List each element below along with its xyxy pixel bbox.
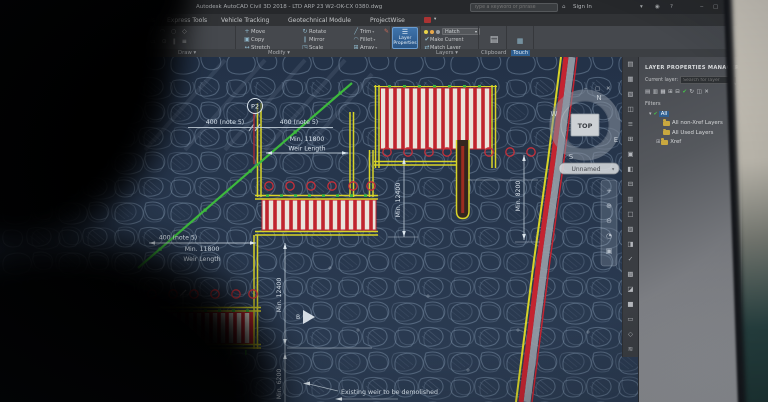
move-tool[interactable]: Move [251, 29, 265, 35]
strip-icon[interactable]: ▤ [627, 57, 633, 72]
dim-8200: Min. 8200 [515, 181, 522, 212]
tree-item-xref[interactable]: ⊞ Xref [656, 139, 737, 145]
modify-col-1: +Move ▣Copy ↔Stretch [243, 28, 270, 52]
fillet-icon: ◠ [352, 36, 360, 43]
dim-400-mid: 400 (note 5) [159, 235, 197, 242]
draw-panel-label[interactable]: Draw ▾ [178, 50, 196, 56]
dwg-close-icon: ✕ [606, 86, 611, 92]
strip-icon[interactable]: ▨ [627, 222, 633, 237]
layer-properties-manager: LAYER PROPERTIES MANAGER Current layer: … [638, 57, 742, 402]
folder-icon [663, 121, 670, 126]
strip-icon[interactable]: ⊟ [628, 177, 633, 192]
rotate-tool[interactable]: Rotate [309, 29, 326, 35]
p2-label: P2 [251, 103, 259, 111]
lpm-toolbar: ▤ ▥ ▦ ⊞ ⊟ ✔ ↻ ◫ ✕ [645, 89, 737, 95]
notification-icon[interactable]: ◉ [655, 4, 660, 10]
dim-weir-label-top: Weir Length [288, 146, 325, 153]
strip-icon[interactable]: ▩ [627, 267, 633, 282]
menu-addon-icon[interactable] [424, 17, 431, 23]
modify-col-3: ╱Trim▾ ◠Fillet▾ ⊞Array▾ [352, 28, 377, 52]
orbit-icon[interactable]: ◔ [606, 232, 612, 240]
strip-icon[interactable]: ▦ [627, 72, 633, 87]
home-icon[interactable]: ⌂ [562, 4, 566, 10]
hatch-tool-icon[interactable]: ≡ [182, 38, 187, 45]
delete-layer-icon[interactable]: ⊟ [675, 89, 680, 95]
tree-item-used-label[interactable]: All Used Layers [672, 130, 713, 136]
maximize-icon[interactable]: ▢ [713, 4, 718, 10]
demolish-note: Existing weir to be demolished [341, 389, 438, 396]
clipboard-panel-label[interactable]: Clipboard [481, 50, 506, 56]
p2-marker: P2 [248, 99, 263, 114]
panel-divider [478, 26, 479, 49]
folder-icon [663, 130, 670, 135]
make-current-tool[interactable]: Make Current [430, 37, 464, 43]
layer-on-icon[interactable] [424, 30, 428, 34]
strip-icon[interactable]: ⊞ [628, 132, 633, 147]
isolate-icon[interactable]: ✕ [704, 89, 709, 95]
strip-icon[interactable]: ◇ [628, 327, 633, 342]
layer-states-icon[interactable]: ▦ [660, 89, 665, 95]
rotate-icon: ↻ [301, 28, 309, 35]
zoom-out-icon[interactable]: ⊖ [606, 217, 612, 225]
menu-addon-arrow-icon[interactable]: ▾ [434, 17, 436, 22]
dim-12400-left: Min. 12400 [276, 278, 283, 313]
panel-divider [506, 26, 507, 49]
modify-col-2: ↻Rotate ∥Mirror ◳Scale [301, 28, 326, 52]
lpm-title: LAYER PROPERTIES MANAGER [645, 65, 737, 71]
paste-icon: ▤ [490, 35, 499, 45]
strip-icon[interactable]: ◨ [627, 237, 633, 252]
tree-item-all-label[interactable]: All [659, 111, 670, 117]
navigation-bar[interactable]: + ⊕ ⊖ ◔ ▣ [601, 180, 617, 266]
window-title: Autodesk AutoCAD Civil 3D 2018 - LTD ARP… [196, 4, 382, 10]
new-filter-icon[interactable]: ▤ [645, 89, 650, 95]
viewcube-west[interactable]: W [551, 110, 558, 118]
strip-icon[interactable]: ✓ [628, 252, 633, 267]
viewcube-top-face[interactable]: TOP [578, 122, 593, 130]
viewcube-north[interactable]: N [596, 94, 601, 102]
palette-icon-strip[interactable]: ▤▦ ▧◫ ≡⊞ ▣◧ ⊟▥ □▨ ◨✓ ▩◪ ■▭ ◇≋ [622, 57, 638, 357]
layer-dropdown-value: Hatch [445, 29, 460, 35]
panel-divider [420, 26, 421, 49]
dim-400-top-left: 400 (note 5) [206, 119, 244, 126]
dim-weir-min-mid: Min. 11800 [185, 246, 220, 253]
panel-divider [235, 26, 236, 49]
tree-item-non-xref-label[interactable]: All non-Xref Layers [672, 120, 723, 126]
section-marker-label: B [296, 314, 300, 321]
monitor-photo: Autodesk AutoCAD Civil 3D 2018 - LTD ARP… [0, 0, 768, 402]
caret-icon[interactable]: ▾ [373, 37, 375, 42]
tree-item-xref-label[interactable]: Xref [670, 139, 681, 145]
dim-400-top-right: 400 (note 5) [280, 119, 318, 126]
layer-dropdown[interactable]: Hatch ▾ [442, 28, 480, 35]
set-current-icon[interactable]: ✔ [682, 89, 687, 95]
layer-lock-icon[interactable] [436, 30, 440, 34]
strip-icon[interactable]: ≋ [628, 342, 633, 357]
tree-item-all[interactable]: ▾ ✔ All [649, 111, 737, 117]
folder-icon [661, 140, 668, 145]
dim-weir-label-mid: Weir Length [183, 256, 220, 263]
trim-icon: ╱ [352, 28, 360, 35]
modify-panel-label[interactable]: Modify ▾ [268, 50, 290, 56]
copy-icon: ▣ [243, 36, 251, 43]
pan-icon[interactable]: + [606, 187, 612, 195]
settings-icon[interactable]: ◫ [697, 89, 702, 95]
view-name-dropdown[interactable]: Unnamed [571, 166, 600, 173]
menu-geotechnical-module[interactable]: Geotechnical Module [288, 17, 351, 24]
new-layer-icon[interactable]: ⊞ [668, 89, 673, 95]
expand-icon[interactable]: ⊞ [656, 139, 660, 145]
refresh-icon[interactable]: ↻ [689, 89, 694, 95]
dim-12400-right: Min. 12400 [395, 183, 402, 218]
mirror-icon: ∥ [301, 36, 309, 43]
dwg-restore-icon: ▢ [595, 86, 600, 92]
caret-icon[interactable]: ▾ [372, 29, 374, 34]
viewcube-east[interactable]: E [614, 136, 618, 144]
panel-divider [533, 26, 534, 49]
tree-item-non-xref[interactable]: All non-Xref Layers [663, 120, 737, 126]
layer-search-input[interactable] [683, 78, 730, 83]
menu-vehicle-tracking[interactable]: Vehicle Tracking [221, 17, 269, 24]
layers-stack-icon: ☰ [393, 29, 417, 36]
strip-icon[interactable]: ≡ [628, 117, 633, 132]
new-group-icon[interactable]: ▥ [653, 89, 658, 95]
strip-icon[interactable]: ◧ [627, 162, 633, 177]
fillet-tool[interactable]: Fillet [360, 37, 372, 43]
tree-item-used[interactable]: All Used Layers [663, 130, 737, 136]
layer-properties-label: Layer Properties [393, 37, 417, 47]
copy-tool[interactable]: Copy [251, 37, 264, 43]
move-icon: + [243, 28, 251, 35]
polygon-tool-icon[interactable]: ◇ [182, 28, 187, 35]
layer-freeze-icon[interactable] [430, 30, 434, 34]
dropdown-icon[interactable]: ▾ [640, 4, 643, 10]
strip-icon[interactable]: ◫ [627, 102, 633, 117]
chevron-down-icon: ▾ [475, 29, 477, 34]
check-icon: ✔ [654, 111, 658, 117]
erase-icon[interactable]: ✎ [384, 28, 389, 35]
mirror-tool[interactable]: Mirror [309, 37, 325, 43]
strip-icon[interactable]: ▥ [627, 192, 633, 207]
filters-label: Filters [645, 101, 737, 107]
panel-divider [390, 26, 391, 49]
strip-icon[interactable]: ▣ [627, 147, 633, 162]
current-layer-label: Current layer: [645, 78, 678, 83]
menu-projectwise[interactable]: ProjectWise [370, 17, 405, 24]
strip-icon[interactable]: ■ [627, 297, 633, 312]
touch-panel-label[interactable]: Touch [511, 50, 530, 56]
zoom-in-icon[interactable]: ⊕ [606, 202, 612, 210]
help-search-box[interactable] [470, 3, 558, 12]
layer-properties-button[interactable]: ☰ Layer Properties [392, 27, 418, 49]
help-search-input[interactable] [474, 5, 554, 10]
layers-panel-label[interactable]: Layers ▾ [436, 50, 458, 56]
sign-in-button[interactable]: Sign In [573, 4, 592, 10]
viewcube-south[interactable]: S [569, 153, 574, 161]
minimize-icon[interactable]: ‒ [700, 4, 704, 10]
collapse-icon[interactable]: ▾ [649, 111, 652, 117]
strip-icon[interactable]: ◪ [627, 282, 633, 297]
strip-icon[interactable]: □ [627, 207, 633, 222]
select-mode-icon: ▦ [517, 37, 524, 45]
steering-wheel-icon[interactable]: ▣ [606, 247, 613, 255]
strip-icon[interactable]: ▧ [627, 87, 633, 102]
dim-weir-min-top: Min. 11800 [290, 136, 325, 143]
help-icon[interactable]: ? [670, 4, 673, 10]
strip-icon[interactable]: ▭ [627, 312, 633, 327]
layers-panel: Hatch ▾ ✔Make Current ⇄Match Layer [424, 28, 480, 52]
trim-tool[interactable]: Trim [360, 29, 371, 35]
